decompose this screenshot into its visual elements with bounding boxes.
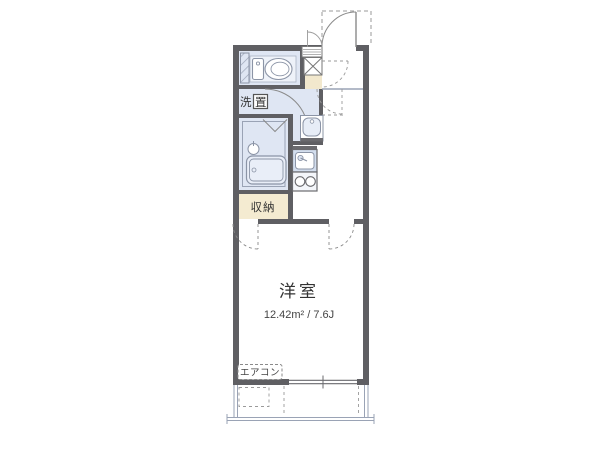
wall-top-right — [356, 45, 369, 51]
wall-room-top-right — [354, 219, 363, 224]
wall-toilet-bottom — [239, 85, 305, 89]
laundry-label-char2: 置 — [255, 96, 268, 109]
room-door-arcs — [233, 224, 354, 249]
vanity-basin-icon — [301, 116, 324, 142]
balcony — [227, 385, 374, 424]
wall-closet-top — [239, 190, 293, 194]
wall-left — [233, 45, 239, 385]
aircon-label: エアコン — [240, 368, 280, 379]
porch-outline — [322, 11, 371, 45]
shoe-cabinet-icon — [304, 58, 322, 76]
closet-label: 収納 — [251, 201, 276, 214]
closet: 収納 — [251, 201, 276, 214]
toilet-icon — [250, 56, 296, 82]
louver-window-icon — [241, 53, 250, 83]
wall-bottom-right — [357, 379, 369, 385]
wall-right — [363, 45, 369, 385]
entrance-door-arc — [322, 12, 356, 47]
outdoor-unit-space — [239, 388, 269, 407]
toilet-room — [241, 53, 297, 83]
entry-step-floor — [305, 75, 322, 89]
wall-vanity-kitchen — [292, 141, 323, 145]
room-size-label: 12.42m² / 7.6J — [264, 309, 334, 321]
room-door-arc — [329, 224, 354, 249]
meter-box-icon — [302, 47, 322, 58]
wall-washroom-bath — [239, 114, 292, 118]
laundry-label-char1: 洗 — [240, 96, 253, 109]
western-room: 洋室 12.42m² / 7.6J エアコン — [233, 224, 354, 380]
stove-2-burner-icon — [293, 172, 318, 191]
floor-plan: 洗 置 — [0, 0, 600, 450]
room-name-label: 洋室 — [279, 282, 319, 301]
balcony-dashed-marks — [239, 386, 359, 413]
kitchen-sink-icon — [293, 150, 318, 173]
aircon-unit: エアコン — [238, 365, 282, 380]
wall-closet-right — [288, 190, 293, 224]
meter-box-door-arc — [308, 30, 323, 47]
bathtub-icon — [247, 156, 287, 184]
wall-room-top-mid — [258, 219, 329, 224]
window — [289, 376, 357, 389]
kitchen-unit — [293, 146, 318, 191]
